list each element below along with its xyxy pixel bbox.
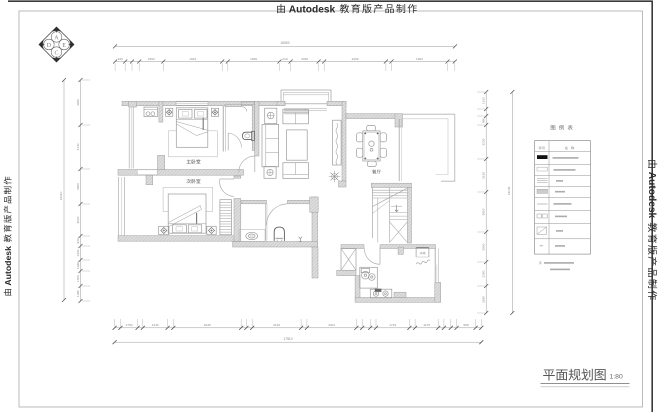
svg-text:1902: 1902 xyxy=(416,57,423,61)
svg-text:1060: 1060 xyxy=(76,262,80,269)
svg-text:3000: 3000 xyxy=(76,216,80,223)
svg-text:2890: 2890 xyxy=(482,243,486,250)
svg-text:1175: 1175 xyxy=(423,323,430,327)
svg-text:3432: 3432 xyxy=(301,57,308,61)
svg-text:2590: 2590 xyxy=(482,296,486,303)
svg-text:2430: 2430 xyxy=(352,57,359,61)
svg-text:1400: 1400 xyxy=(76,275,80,282)
svg-text:595: 595 xyxy=(464,323,469,327)
svg-text:1240: 1240 xyxy=(152,323,159,327)
svg-text:4045: 4045 xyxy=(204,323,211,327)
svg-text:3800: 3800 xyxy=(482,208,486,215)
svg-text:1:80: 1:80 xyxy=(610,373,623,380)
svg-text:Autodesk: Autodesk xyxy=(646,172,657,219)
svg-text:940: 940 xyxy=(76,238,80,243)
svg-text:3300: 3300 xyxy=(76,183,80,190)
svg-text:1760: 1760 xyxy=(126,323,133,327)
svg-text:1480: 1480 xyxy=(76,290,80,297)
svg-text:Autodesk: Autodesk xyxy=(289,4,336,15)
svg-text:1046: 1046 xyxy=(250,57,257,61)
svg-text:3135: 3135 xyxy=(482,172,486,179)
svg-text:4260: 4260 xyxy=(76,99,80,106)
svg-text:2401: 2401 xyxy=(328,323,335,327)
svg-text:4140: 4140 xyxy=(76,143,80,150)
svg-text:2140: 2140 xyxy=(273,323,280,327)
svg-text:890: 890 xyxy=(482,118,486,123)
svg-text:17510: 17510 xyxy=(283,337,292,341)
svg-text:1340: 1340 xyxy=(76,249,80,256)
svg-text:210: 210 xyxy=(282,57,287,61)
svg-text:1610: 1610 xyxy=(482,97,486,104)
svg-text:13136: 13136 xyxy=(507,186,511,195)
svg-text:19410: 19410 xyxy=(59,191,63,200)
svg-text:240: 240 xyxy=(118,57,123,61)
svg-text:3230: 3230 xyxy=(482,138,486,145)
svg-text:2280: 2280 xyxy=(482,270,486,277)
svg-text:Autodesk: Autodesk xyxy=(3,246,13,286)
svg-text:1944: 1944 xyxy=(189,57,196,61)
svg-text:1719: 1719 xyxy=(389,323,396,327)
svg-text:16500: 16500 xyxy=(280,41,289,45)
svg-text:1502: 1502 xyxy=(148,57,155,61)
